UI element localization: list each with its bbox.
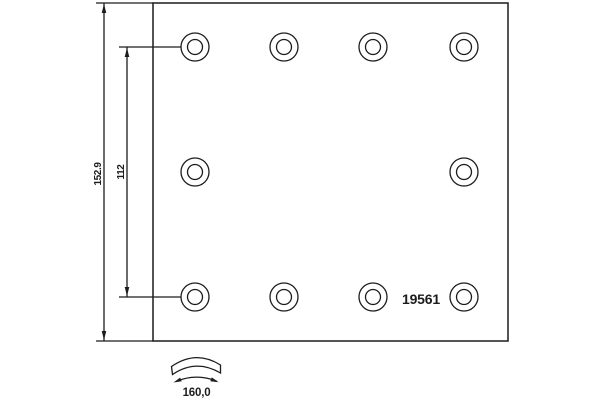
rivet-hole-inner <box>277 290 292 305</box>
rivet-hole-inner <box>188 40 203 55</box>
width-dimension-label: 160,0 <box>183 387 211 399</box>
rivet-hole-outer <box>359 33 387 61</box>
rivet-hole-inner <box>366 290 381 305</box>
lining-outline <box>153 3 508 341</box>
rivet-hole-outer <box>181 33 209 61</box>
rivet-hole-inner <box>457 40 472 55</box>
rivet-hole-inner <box>366 40 381 55</box>
drawing-svg: 152.9 112 19561 160,0 <box>0 0 600 400</box>
rivet-hole-inner <box>277 40 292 55</box>
rivet-hole-outer <box>270 283 298 311</box>
width-arrow-left-icon <box>174 378 182 383</box>
spacing-dimension-label: 112 <box>116 164 127 180</box>
width-dimension-arc <box>176 377 217 381</box>
spacing-arrow-up-icon <box>125 48 130 57</box>
rivet-hole-inner <box>188 165 203 180</box>
rivet-hole-outer <box>450 33 478 61</box>
height-arrow-up-icon <box>102 4 107 13</box>
brake-lining-technical-drawing: 152.9 112 19561 160,0 <box>0 0 600 400</box>
width-arrow-right-icon <box>210 377 218 382</box>
rivet-hole-outer <box>270 33 298 61</box>
height-dimension-label: 152.9 <box>93 162 104 186</box>
rivet-hole-outer <box>181 158 209 186</box>
rivet-hole-outer <box>181 283 209 311</box>
rivet-hole-outer <box>450 283 478 311</box>
rivet-hole-inner <box>457 165 472 180</box>
rivet-hole-outer <box>450 158 478 186</box>
rivet-hole-inner <box>457 290 472 305</box>
rivet-holes <box>181 33 478 311</box>
rivet-hole-inner <box>188 290 203 305</box>
height-arrow-down-icon <box>102 331 107 340</box>
rivet-hole-outer <box>359 283 387 311</box>
spacing-arrow-down-icon <box>125 287 130 296</box>
lining-end-view <box>172 358 221 375</box>
part-number-label: 19561 <box>402 291 440 307</box>
